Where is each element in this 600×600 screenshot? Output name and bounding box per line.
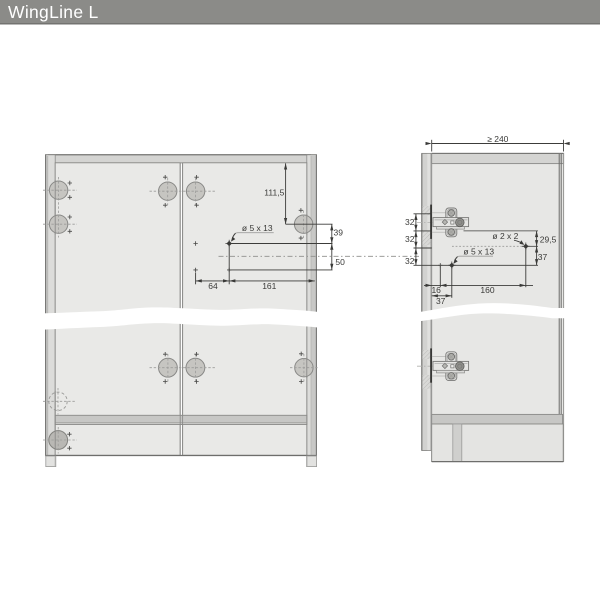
svg-text:32: 32	[405, 256, 415, 266]
svg-text:29,5: 29,5	[540, 234, 557, 244]
svg-text:161: 161	[262, 281, 276, 291]
svg-text:37: 37	[436, 296, 446, 306]
svg-text:ø 2 x 2: ø 2 x 2	[492, 231, 518, 241]
svg-text:16: 16	[431, 285, 441, 295]
svg-text:50: 50	[335, 257, 345, 267]
svg-text:111,5: 111,5	[264, 188, 284, 198]
svg-text:39: 39	[334, 228, 344, 238]
svg-text:32: 32	[405, 217, 415, 227]
svg-text:ø 5 x 13: ø 5 x 13	[463, 247, 494, 257]
svg-text:37: 37	[538, 252, 548, 262]
svg-text:ø 5 x 13: ø 5 x 13	[242, 223, 273, 233]
svg-text:32: 32	[405, 234, 415, 244]
svg-text:64: 64	[208, 281, 218, 291]
svg-text:≥ 240: ≥ 240	[487, 134, 508, 144]
svg-text:160: 160	[480, 285, 494, 295]
svg-text:WingLine L: WingLine L	[8, 2, 99, 22]
